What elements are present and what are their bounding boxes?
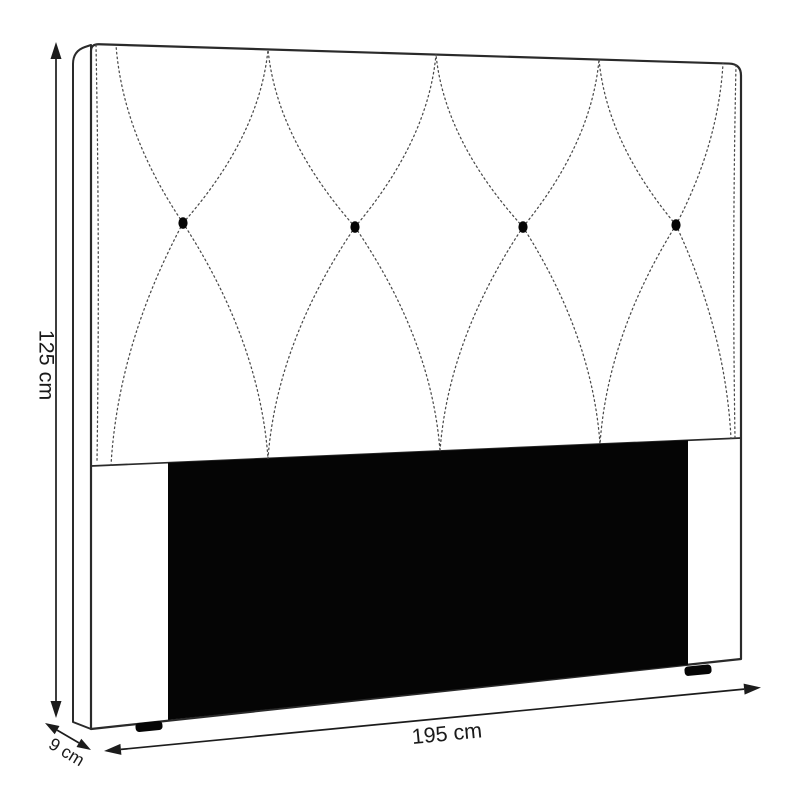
- tufting-button: [671, 219, 680, 231]
- width-dimension-label: 195 cm: [411, 718, 483, 749]
- arrowhead-down-icon: [51, 701, 62, 718]
- recessed-lower-panel: [168, 440, 688, 720]
- arrowhead-up-icon: [51, 42, 62, 59]
- arrowhead-left-icon: [104, 744, 121, 755]
- right-foot: [684, 664, 712, 676]
- tufting-button: [178, 217, 187, 229]
- headboard-side-panel: [73, 45, 91, 729]
- depth-dimension: 9 cm: [45, 723, 91, 770]
- diagram-canvas: 125 cm 195 cm 9 cm: [0, 0, 800, 800]
- depth-dimension-label: 9 cm: [45, 733, 88, 770]
- headboard-dimension-diagram: 125 cm 195 cm 9 cm: [0, 0, 800, 800]
- arrowhead-right-icon: [744, 684, 761, 695]
- arrowhead-upleft-icon: [45, 723, 60, 734]
- tufting-button: [518, 221, 527, 233]
- height-dimension-label: 125 cm: [34, 330, 58, 401]
- height-dimension: 125 cm: [34, 42, 61, 718]
- tufting-button: [350, 221, 359, 233]
